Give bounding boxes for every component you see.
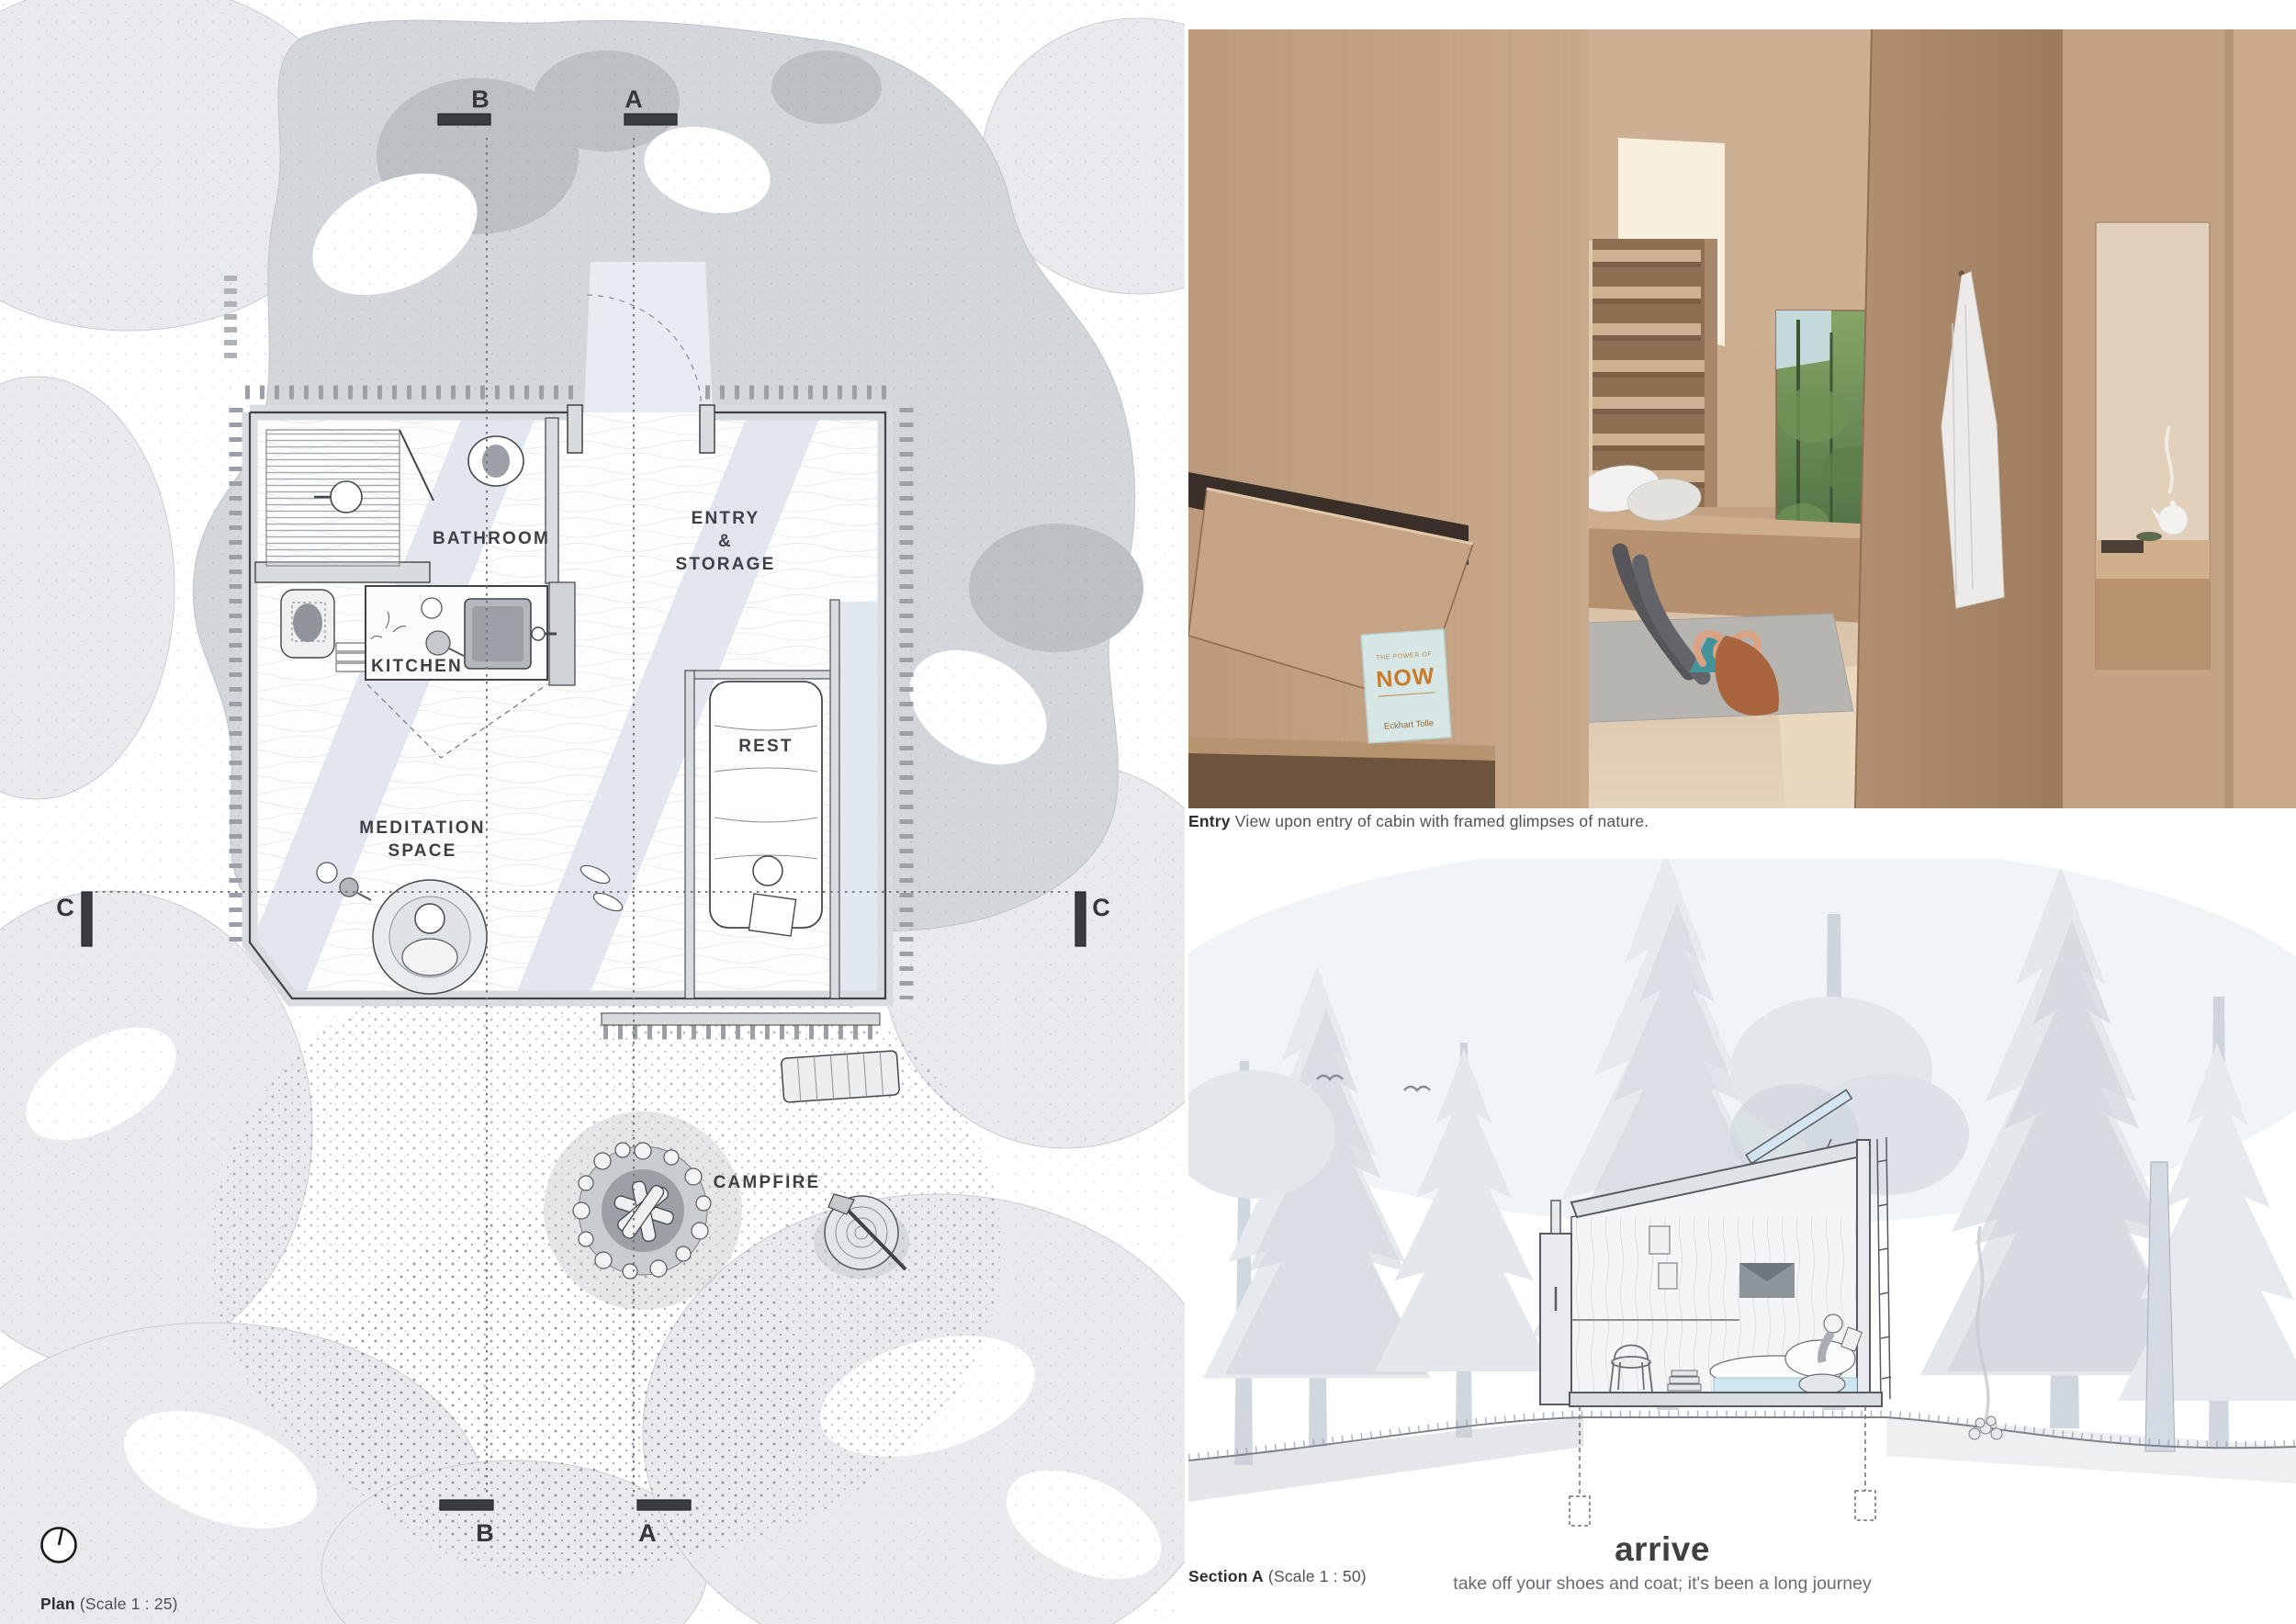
entry-caption: Entry View upon entry of cabin with fram… xyxy=(1188,812,1649,831)
log-bench xyxy=(781,1051,899,1103)
entry-path xyxy=(584,262,713,412)
floor-plan-panel: B A B A C C BATHROOM KITCHEN ENTRY & STO… xyxy=(0,0,1185,1624)
book xyxy=(748,894,795,936)
sink xyxy=(331,481,362,513)
marker-c-right: C xyxy=(1092,894,1110,921)
person-head xyxy=(1824,1314,1842,1333)
resting-person xyxy=(753,856,782,885)
rest-label: REST xyxy=(738,737,793,756)
plan-caption: Plan (Scale 1 : 25) xyxy=(40,1595,178,1614)
section-drawing xyxy=(1188,859,2296,1552)
marker-b-bottom: B xyxy=(476,1519,494,1547)
teapot xyxy=(317,863,337,883)
entry-caption-bold: Entry xyxy=(1188,812,1231,830)
small-pan xyxy=(340,878,358,897)
duffel-bag xyxy=(1799,1374,1845,1394)
plan-caption-bold: Plan xyxy=(40,1595,75,1613)
entry-render: THE POWER OF NOW Eckhart Tolle xyxy=(1188,29,2296,808)
entry-label-1: ENTRY xyxy=(692,509,760,528)
rest-wall-right xyxy=(830,600,839,998)
marker-c-left: C xyxy=(56,894,74,921)
ground-shade-right xyxy=(1886,1417,2296,1483)
rest-wall-top xyxy=(685,671,839,679)
wall-frame xyxy=(1649,1226,1670,1254)
entry-caption-rest: View upon entry of cabin with framed gli… xyxy=(1231,812,1649,830)
towel-stack xyxy=(336,643,367,651)
door-jamb xyxy=(568,405,582,453)
book-stack xyxy=(1668,1370,1701,1391)
section-caption-rest: (Scale 1 : 50) xyxy=(1264,1567,1367,1585)
wall-frame xyxy=(1659,1263,1677,1289)
sink-basin xyxy=(2101,540,2144,553)
arrive-block: arrive take off your shoes and coat; it'… xyxy=(1424,1530,1901,1595)
marker-b-top: B xyxy=(471,85,490,113)
meditation-label-1: MEDITATION xyxy=(359,818,485,838)
entry-label-3: STORAGE xyxy=(675,555,775,574)
book-power-of-now: THE POWER OF NOW Eckhart Tolle xyxy=(1361,629,1451,743)
foreground-trunk xyxy=(2145,1162,2175,1451)
meditation-label-2: SPACE xyxy=(388,841,456,861)
arrive-subline: take off your shoes and coat; it's been … xyxy=(1424,1573,1901,1595)
campfire-label: CAMPFIRE xyxy=(714,1173,821,1192)
pan xyxy=(426,631,450,655)
entry-label-2: & xyxy=(718,532,733,551)
meditating-person xyxy=(415,904,445,933)
marker-a-bottom: A xyxy=(638,1519,657,1547)
book-title-text: NOW xyxy=(1375,663,1435,693)
marker-a-top: A xyxy=(625,85,643,113)
sleeping-bag xyxy=(710,682,822,928)
arrive-headline: arrive xyxy=(1424,1530,1901,1569)
tea-leaves xyxy=(2136,532,2162,541)
vent xyxy=(1551,1201,1560,1234)
section-caption: Section A (Scale 1 : 50) xyxy=(1188,1567,1367,1586)
kitchenette-glimpse xyxy=(2063,29,2296,808)
terrace-edge xyxy=(602,1013,880,1025)
kettle xyxy=(422,598,442,618)
rest-wall-left xyxy=(685,671,694,998)
left-wall-section xyxy=(1540,1234,1571,1404)
bathroom-label: BATHROOM xyxy=(433,529,550,548)
north-arrow-icon xyxy=(42,1528,76,1562)
bathroom-side-wall xyxy=(546,418,558,583)
kitchen-label: KITCHEN xyxy=(371,657,463,676)
floor-slab xyxy=(1570,1393,1882,1406)
foundation-piles xyxy=(1570,1406,1875,1526)
right-wall-section xyxy=(1857,1140,1870,1401)
plan-caption-rest: (Scale 1 : 25) xyxy=(75,1595,178,1613)
presentation-board: B A B A C C BATHROOM KITCHEN ENTRY & STO… xyxy=(0,0,2296,1624)
sky-glimpse xyxy=(1776,310,1831,369)
section-caption-bold: Section A xyxy=(1188,1567,1264,1585)
door-jamb xyxy=(700,405,715,453)
